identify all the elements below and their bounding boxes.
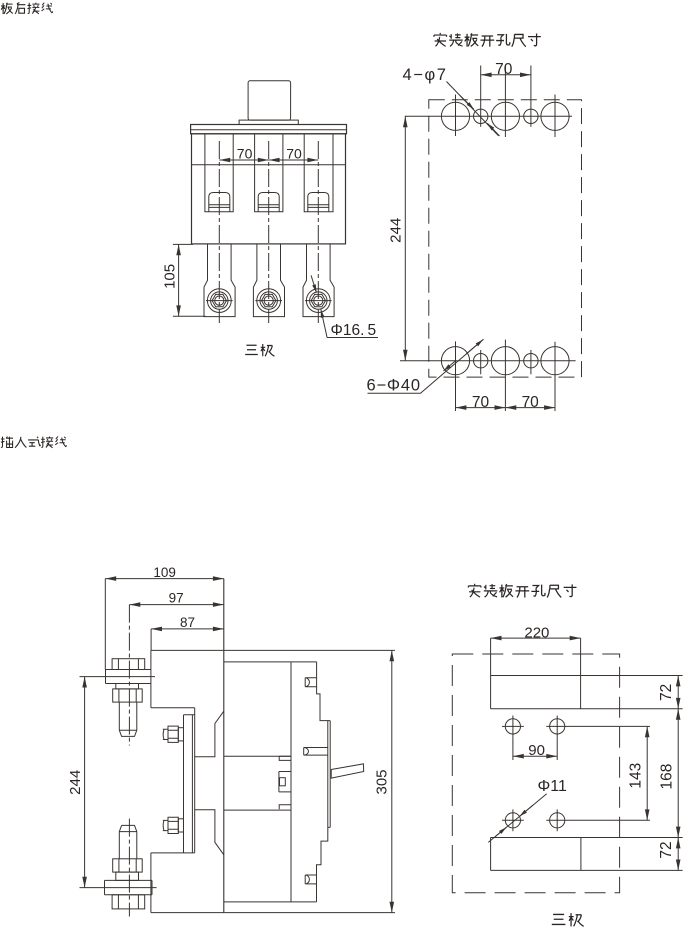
svg-text:70: 70 [237,145,253,161]
svg-text:90: 90 [528,742,545,759]
svg-text:220: 220 [524,625,549,642]
svg-text:70: 70 [472,394,490,411]
svg-text:Φ11: Φ11 [538,778,567,795]
svg-text:244: 244 [387,218,404,243]
svg-text:72: 72 [658,684,675,701]
svg-text:70: 70 [522,394,540,411]
svg-text:97: 97 [169,591,184,606]
svg-text:105: 105 [162,264,179,289]
svg-text:305: 305 [374,769,391,794]
svg-text:87: 87 [180,615,195,630]
svg-text:72: 72 [658,841,675,858]
svg-text:109: 109 [153,565,176,580]
svg-text:70: 70 [286,145,302,161]
svg-text:4−φ7: 4−φ7 [403,66,448,84]
svg-text:168: 168 [659,764,676,790]
svg-text:143: 143 [627,763,644,789]
svg-text:Φ16. 5: Φ16. 5 [331,322,377,339]
svg-text:6−Φ40: 6−Φ40 [367,377,421,395]
svg-text:70: 70 [495,61,513,78]
svg-text:244: 244 [67,770,84,795]
